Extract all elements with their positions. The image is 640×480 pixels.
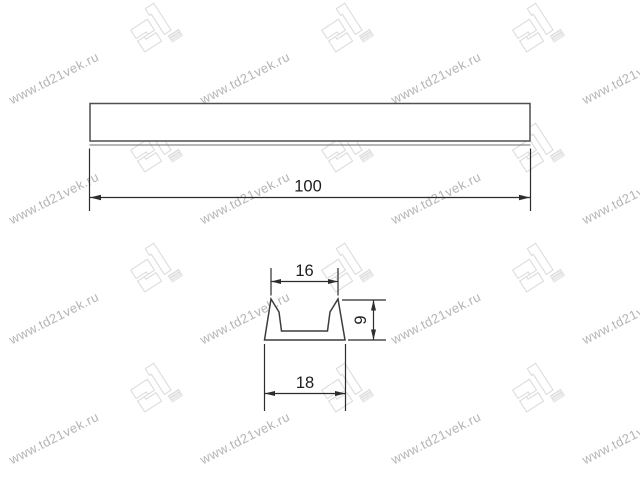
arrowhead-top [371, 300, 376, 311]
arrowhead-left [271, 279, 281, 284]
dimension-value-height: 9 [352, 315, 370, 324]
technical-drawing-page: www.td21vek.ruwww.td21vek.ruwww.td21vek.… [0, 0, 640, 480]
profile-side-view-body [90, 104, 530, 142]
profile-drawing: 100 16 9 [0, 0, 640, 480]
u-channel-profile [265, 299, 346, 340]
side-view [90, 104, 531, 146]
dimension-length: 100 [90, 149, 531, 212]
arrowhead-right [328, 279, 338, 284]
dimension-bottom-width: 18 [265, 344, 346, 411]
dimension-height: 9 [342, 300, 386, 340]
dimension-value-top-width: 16 [295, 262, 313, 280]
arrowhead-left [90, 195, 101, 201]
arrowhead-bottom [371, 330, 376, 341]
cross-section-view [265, 299, 346, 340]
arrowhead-left [265, 391, 276, 396]
arrowhead-right [335, 391, 346, 396]
dimension-top-width: 16 [271, 262, 338, 296]
dimension-value-length: 100 [294, 178, 322, 196]
dimension-value-bottom-width: 18 [296, 374, 314, 392]
arrowhead-right [519, 195, 530, 201]
